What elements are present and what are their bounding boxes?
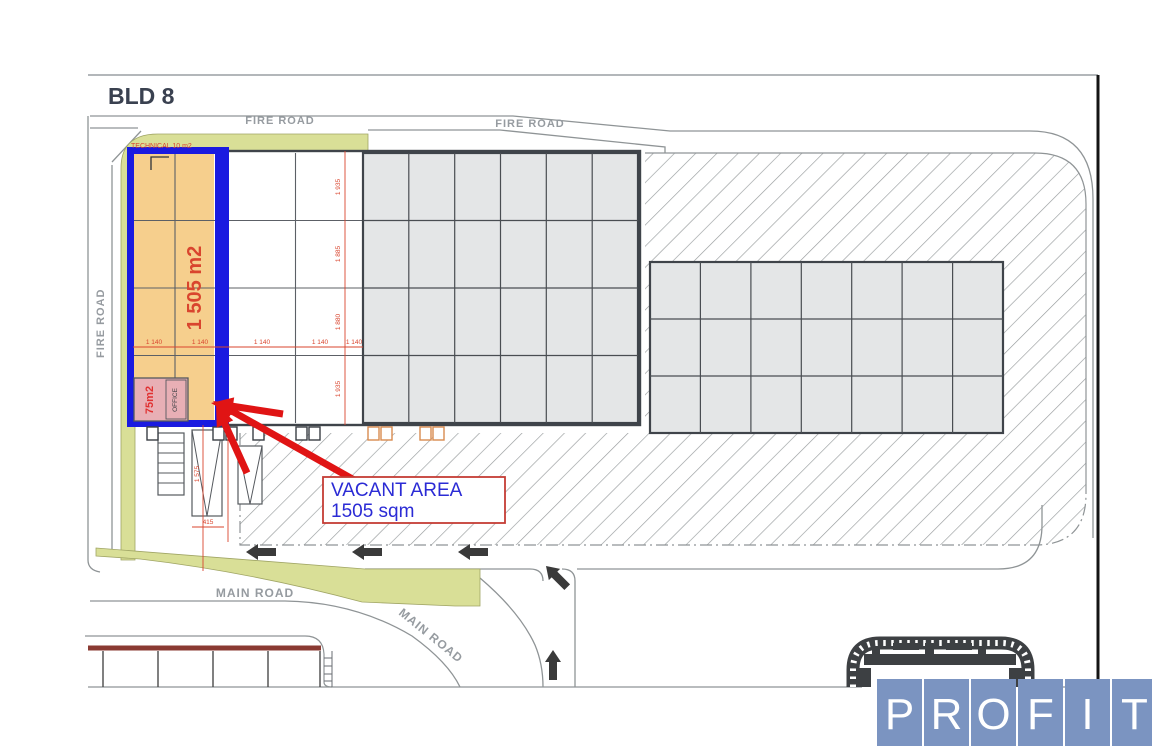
logo-letter: I	[1081, 690, 1093, 739]
structure-detail	[893, 643, 919, 650]
fire-road-label-top-right: FIRE ROAD	[495, 118, 565, 130]
structure-detail	[872, 646, 880, 665]
structure-detail	[946, 643, 972, 650]
dim-col-3: 1 140	[254, 339, 271, 346]
up-arrow-icon	[545, 650, 561, 680]
dock-door	[309, 427, 320, 440]
logo-letter: O	[976, 690, 1010, 739]
logo-letter: P	[885, 690, 914, 739]
site-plan-svg: 1 140 1 140 1 140 1 140 1 140 1 935 1 88…	[0, 0, 1152, 746]
dock-door-orange	[381, 427, 392, 440]
fire-road-label-top-left: FIRE ROAD	[245, 115, 315, 127]
profit-logo: P R O F I T	[877, 679, 1152, 746]
dim-ramp-height: 1 575	[194, 465, 201, 482]
dock-door-orange	[368, 427, 379, 440]
office-box	[134, 378, 188, 421]
stairs-block	[158, 433, 184, 495]
fire-road-label-left: FIRE ROAD	[95, 289, 107, 359]
dock-door-orange	[433, 427, 444, 440]
dim-row-1: 1 935	[335, 178, 342, 195]
bottom-left-building	[85, 636, 332, 687]
office-label: OFFICE	[172, 387, 179, 411]
logo-letter: F	[1027, 690, 1054, 739]
main-road-label-diagonal: MAIN ROAD	[396, 605, 466, 665]
structure-detail	[925, 643, 934, 665]
technical-room-label: TECHNICAL 10 m2	[131, 143, 192, 150]
dim-col-5: 1 140	[346, 339, 363, 346]
up-left-arrow-icon	[540, 560, 573, 593]
dock-door	[296, 427, 307, 440]
main-road-label: MAIN ROAD	[216, 586, 294, 600]
callout-size: 1505 sqm	[331, 501, 414, 522]
dim-col-2: 1 140	[192, 339, 209, 346]
dock-door	[213, 427, 224, 440]
page-title: BLD 8	[108, 83, 175, 109]
dim-row-2: 1 885	[335, 245, 342, 262]
fire-road-top-lower-edge	[368, 130, 665, 153]
structure-detail	[978, 646, 986, 665]
left-arrow-icon	[246, 544, 276, 560]
dim-col-4: 1 140	[312, 339, 329, 346]
dock-door-orange	[420, 427, 431, 440]
logo-letter: R	[931, 690, 963, 739]
dock-door	[147, 427, 158, 440]
dim-row-3: 1 880	[335, 313, 342, 330]
left-arrow-icon	[458, 544, 488, 560]
vacant-area-size-label: 1 505 m2	[184, 246, 206, 331]
dim-ramp-width: 415	[203, 519, 214, 526]
callout-title: VACANT AREA	[331, 480, 463, 501]
parking-grid-right	[650, 262, 1003, 433]
office-size-label: 75m2	[144, 386, 156, 414]
main-road-diagonal-right-edge	[480, 578, 543, 687]
bottom-building-ladder-marks	[324, 651, 332, 687]
dim-col-1: 1 140	[146, 339, 163, 346]
bottom-building-dividers	[103, 651, 320, 687]
vacant-highlight-right-bar	[215, 154, 228, 420]
structure-corner	[856, 668, 871, 687]
site-plan-page: 1 140 1 140 1 140 1 140 1 140 1 935 1 88…	[0, 0, 1152, 746]
left-road-bottom-curve	[88, 560, 100, 572]
structure-inner-bar	[864, 654, 1016, 665]
logo-letter: T	[1121, 690, 1148, 739]
left-arrow-icon	[352, 544, 382, 560]
bottom-building-outline	[85, 636, 332, 687]
dim-row-4: 1 935	[335, 380, 342, 397]
